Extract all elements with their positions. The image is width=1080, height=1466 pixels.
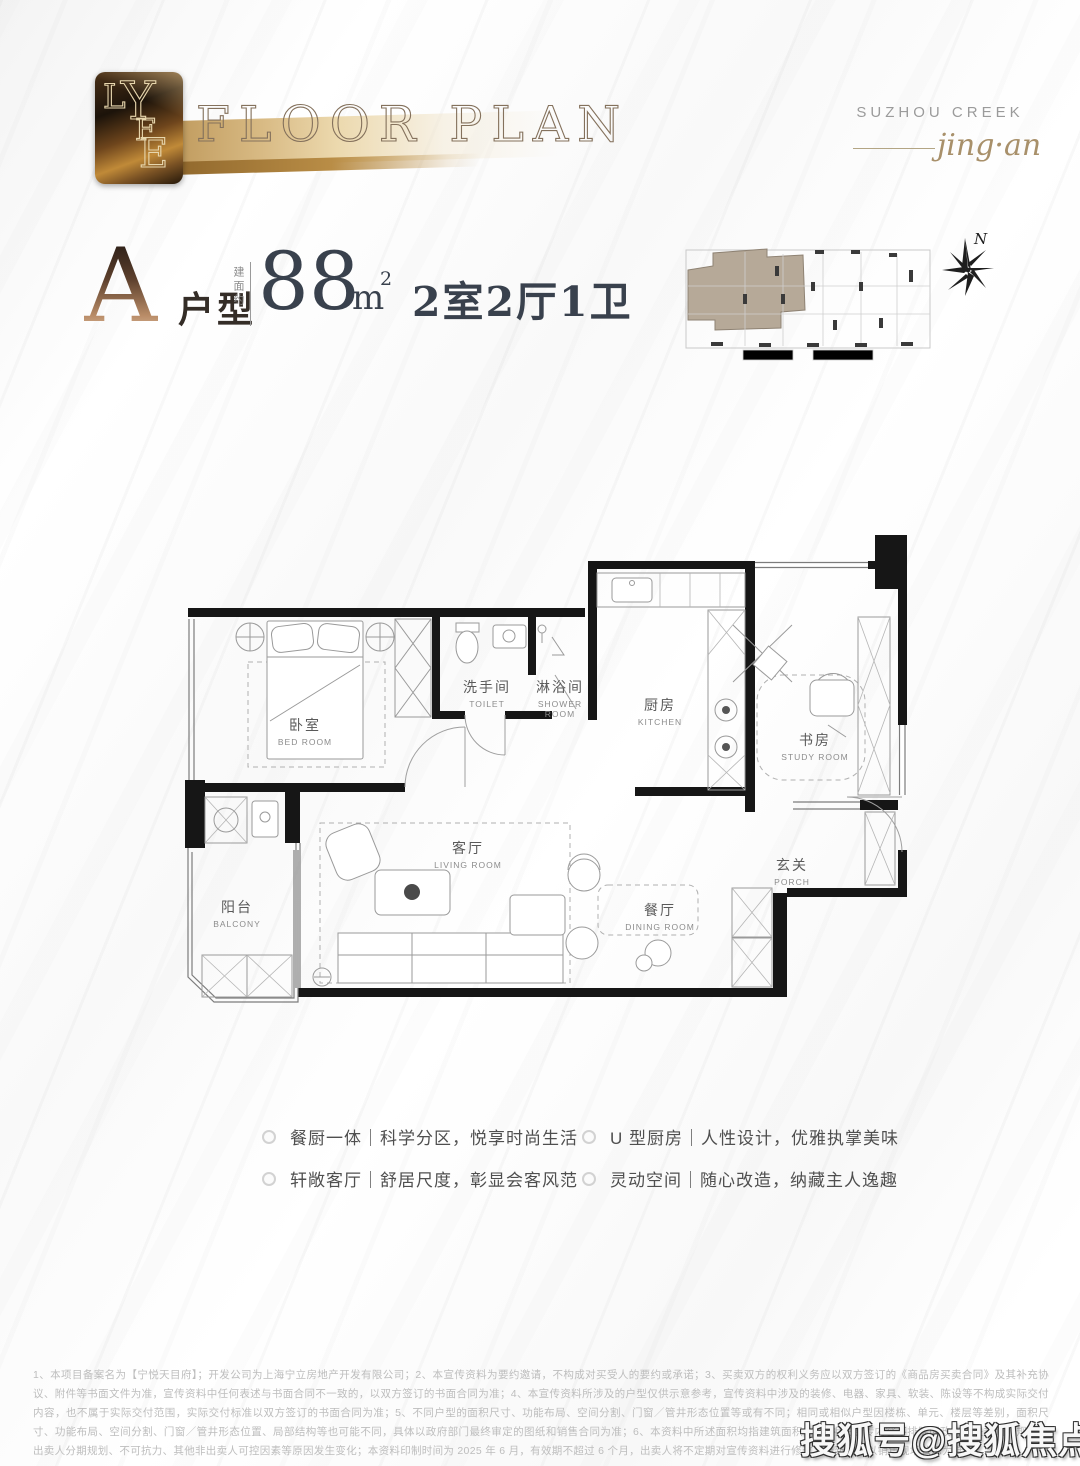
page-title: FLOOR PLAN <box>196 96 629 153</box>
compass: N <box>938 230 998 300</box>
logo-letter: E <box>139 134 168 174</box>
floor-plan-poster: L Y F E FLOOR PLAN SUZHOU CREEK jing·an … <box>0 0 1080 1466</box>
unit-letter: A <box>84 236 158 338</box>
bullet-ring-icon <box>582 1130 596 1144</box>
kitchen-furniture <box>597 573 745 790</box>
watermark: 搜狐号@搜狐焦点淮南站 <box>800 1412 1080 1464</box>
dining-furniture <box>566 854 698 971</box>
bath-fixtures <box>456 623 564 663</box>
area-superscript: 2 <box>380 268 392 290</box>
unit-highlight <box>688 249 805 330</box>
floor-plan-drawing: 卧室BED ROOM 洗手间TOILET 淋浴间SHOWER ROOM 厨房KI… <box>180 525 920 1015</box>
bullet-ring-icon <box>262 1130 276 1144</box>
brand-subname: jing·an <box>937 128 1041 163</box>
bullet-ring-icon <box>262 1172 276 1186</box>
feature-item: U 型厨房｜人性设计，优雅执掌美味 <box>582 1124 899 1149</box>
brand-rule <box>853 148 935 149</box>
area-prefix: 建面约 <box>230 266 246 328</box>
study-furniture <box>733 617 890 795</box>
unit-layout: 2室2厅1卫 <box>412 268 633 328</box>
living-furniture <box>313 820 570 986</box>
brand-name: SUZHOU CREEK <box>845 104 1035 121</box>
bullet-ring-icon <box>582 1172 596 1186</box>
porch-furniture <box>732 812 895 987</box>
area-value: 88 <box>258 242 360 322</box>
brand-block: SUZHOU CREEK jing·an <box>845 104 1035 121</box>
feature-item: 灵动空间｜随心改造，纳藏主人逸趣 <box>582 1166 898 1191</box>
building-key-plan <box>683 230 935 382</box>
north-label: N <box>974 230 987 248</box>
balcony-furniture <box>202 797 292 997</box>
feature-item: 轩敞客厅｜舒居尺度，彰显会客风范 <box>262 1166 578 1191</box>
bedroom-furniture <box>236 619 431 767</box>
area-divider <box>250 262 251 326</box>
feature-item: 餐厨一体｜科学分区，悦享时尚生活 <box>262 1124 578 1149</box>
lyfe-logo: L Y F E <box>95 72 183 184</box>
